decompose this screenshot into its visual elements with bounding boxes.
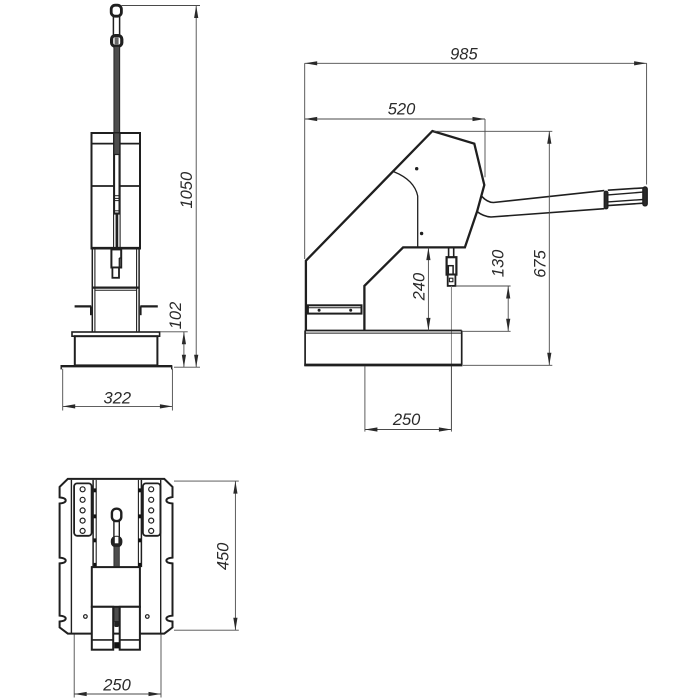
svg-text:240: 240	[411, 272, 429, 301]
svg-text:985: 985	[450, 46, 478, 64]
svg-text:102: 102	[167, 302, 185, 330]
svg-text:130: 130	[490, 249, 508, 277]
svg-text:520: 520	[388, 101, 416, 119]
svg-text:250: 250	[392, 411, 421, 429]
svg-text:250: 250	[102, 677, 131, 695]
svg-text:1050: 1050	[178, 171, 196, 209]
svg-text:322: 322	[104, 390, 132, 408]
svg-text:675: 675	[532, 249, 550, 277]
svg-text:450: 450	[215, 542, 233, 570]
